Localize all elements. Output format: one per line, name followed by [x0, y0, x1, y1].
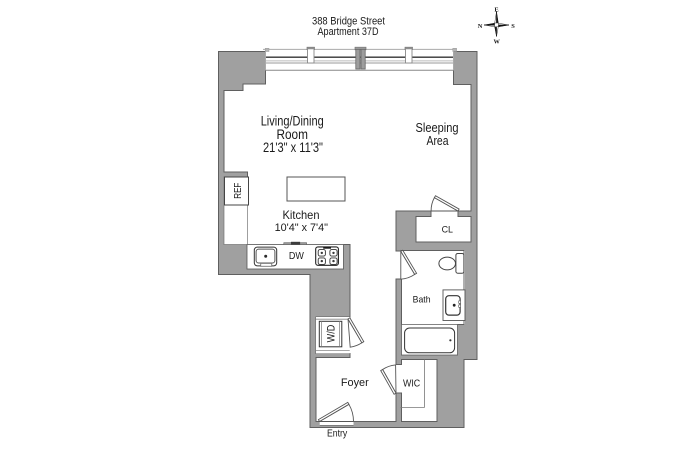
svg-text:REF: REF	[233, 183, 244, 199]
svg-text:21'3" x 11'3": 21'3" x 11'3"	[263, 140, 323, 155]
svg-text:Bath: Bath	[413, 294, 431, 305]
svg-text:W: W	[494, 38, 501, 45]
svg-text:Area: Area	[427, 133, 449, 148]
svg-text:DW: DW	[289, 251, 305, 262]
svg-text:Kitchen: Kitchen	[283, 208, 320, 222]
svg-text:Foyer: Foyer	[341, 377, 369, 389]
svg-text:10'4" x 7'4": 10'4" x 7'4"	[275, 222, 328, 234]
svg-text:N: N	[478, 23, 483, 30]
svg-text:Entry: Entry	[327, 429, 347, 440]
svg-text:E: E	[494, 6, 498, 13]
svg-text:WIC: WIC	[403, 378, 420, 389]
svg-text:S: S	[511, 23, 515, 30]
svg-text:W/D: W/D	[325, 324, 337, 342]
svg-text:Apartment 37D: Apartment 37D	[318, 26, 379, 38]
svg-text:CL: CL	[442, 224, 453, 235]
